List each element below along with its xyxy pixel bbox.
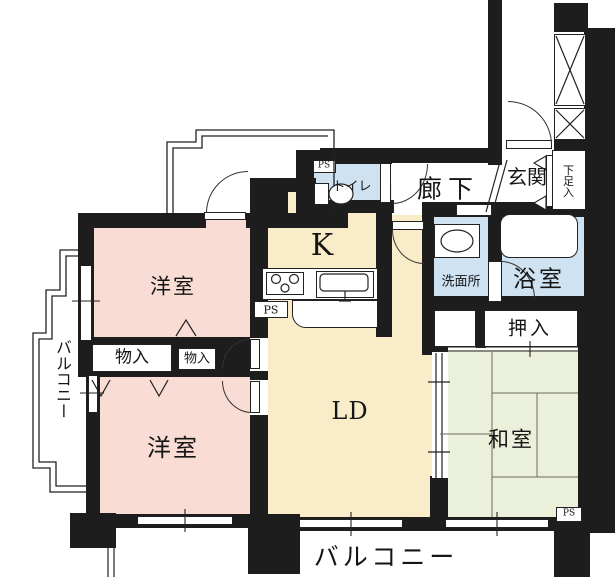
wall xyxy=(78,213,206,228)
kitchen-stove xyxy=(266,272,304,295)
kitchen-sink xyxy=(316,271,374,298)
porch-door-arc xyxy=(206,171,248,213)
kitchen-counter-low xyxy=(292,300,378,328)
japanese-room-label: 和室 xyxy=(488,430,534,451)
meter-box-small xyxy=(554,108,586,140)
room-label-western-upper: 洋室 xyxy=(150,277,196,298)
oshiire-left-box xyxy=(434,310,476,347)
room-label-western-lower: 洋室 xyxy=(147,436,199,460)
bedroom1-door-leaf xyxy=(250,339,260,369)
floor-plan: 洋室 洋室 物入 物入 バルコニー K トイレ 廊下 玄関 下足入 洗面所 浴室… xyxy=(0,0,615,577)
window xyxy=(138,516,232,525)
porch-door-leaf xyxy=(204,212,246,220)
window xyxy=(300,519,402,528)
balcony-bottom-label: バルコニー xyxy=(314,545,459,570)
toilet-door-leaf xyxy=(380,163,391,203)
entry-door-arc xyxy=(508,101,552,145)
washroom-label: 洗面所 xyxy=(441,276,480,289)
wall xyxy=(248,514,300,574)
balcony-left-label: バルコニー xyxy=(54,339,70,419)
closet-2-label: 物入 xyxy=(184,353,210,366)
ps-bottom-right-label: PS xyxy=(563,510,575,519)
window xyxy=(80,266,92,340)
wall xyxy=(320,148,502,163)
window xyxy=(446,519,548,528)
kitchen-label: K xyxy=(311,231,333,261)
wall xyxy=(554,3,588,32)
wall xyxy=(376,200,392,337)
toilet-label: トイレ xyxy=(332,181,371,194)
bathtub xyxy=(500,214,578,258)
shoe-cabinet-door xyxy=(546,155,553,207)
bathroom-label: 浴室 xyxy=(513,269,565,292)
passage-door-leaf xyxy=(392,221,424,230)
window xyxy=(88,376,98,412)
washbasin xyxy=(434,224,480,258)
bath-door-leaf xyxy=(488,261,502,302)
wall xyxy=(488,0,502,165)
ps-kitchen-label: PS xyxy=(264,305,279,316)
toilet-tank xyxy=(314,183,329,205)
closet-1-label: 物入 xyxy=(115,350,149,367)
balcony-bottom-divider xyxy=(108,548,114,577)
washroom-door xyxy=(456,204,492,216)
sliding-door-track xyxy=(432,352,448,478)
shoe-cabinet-label: 下足入 xyxy=(563,165,574,198)
meter-box-tall xyxy=(554,34,586,106)
wall xyxy=(430,476,448,522)
hallway-label: 廊下 xyxy=(417,177,479,202)
ps-top-label: PS xyxy=(318,162,330,171)
entrance-label: 玄関 xyxy=(507,167,547,187)
oshiire-label: 押入 xyxy=(508,320,552,339)
wall xyxy=(578,296,592,533)
living-dining-label: LD xyxy=(331,399,368,423)
